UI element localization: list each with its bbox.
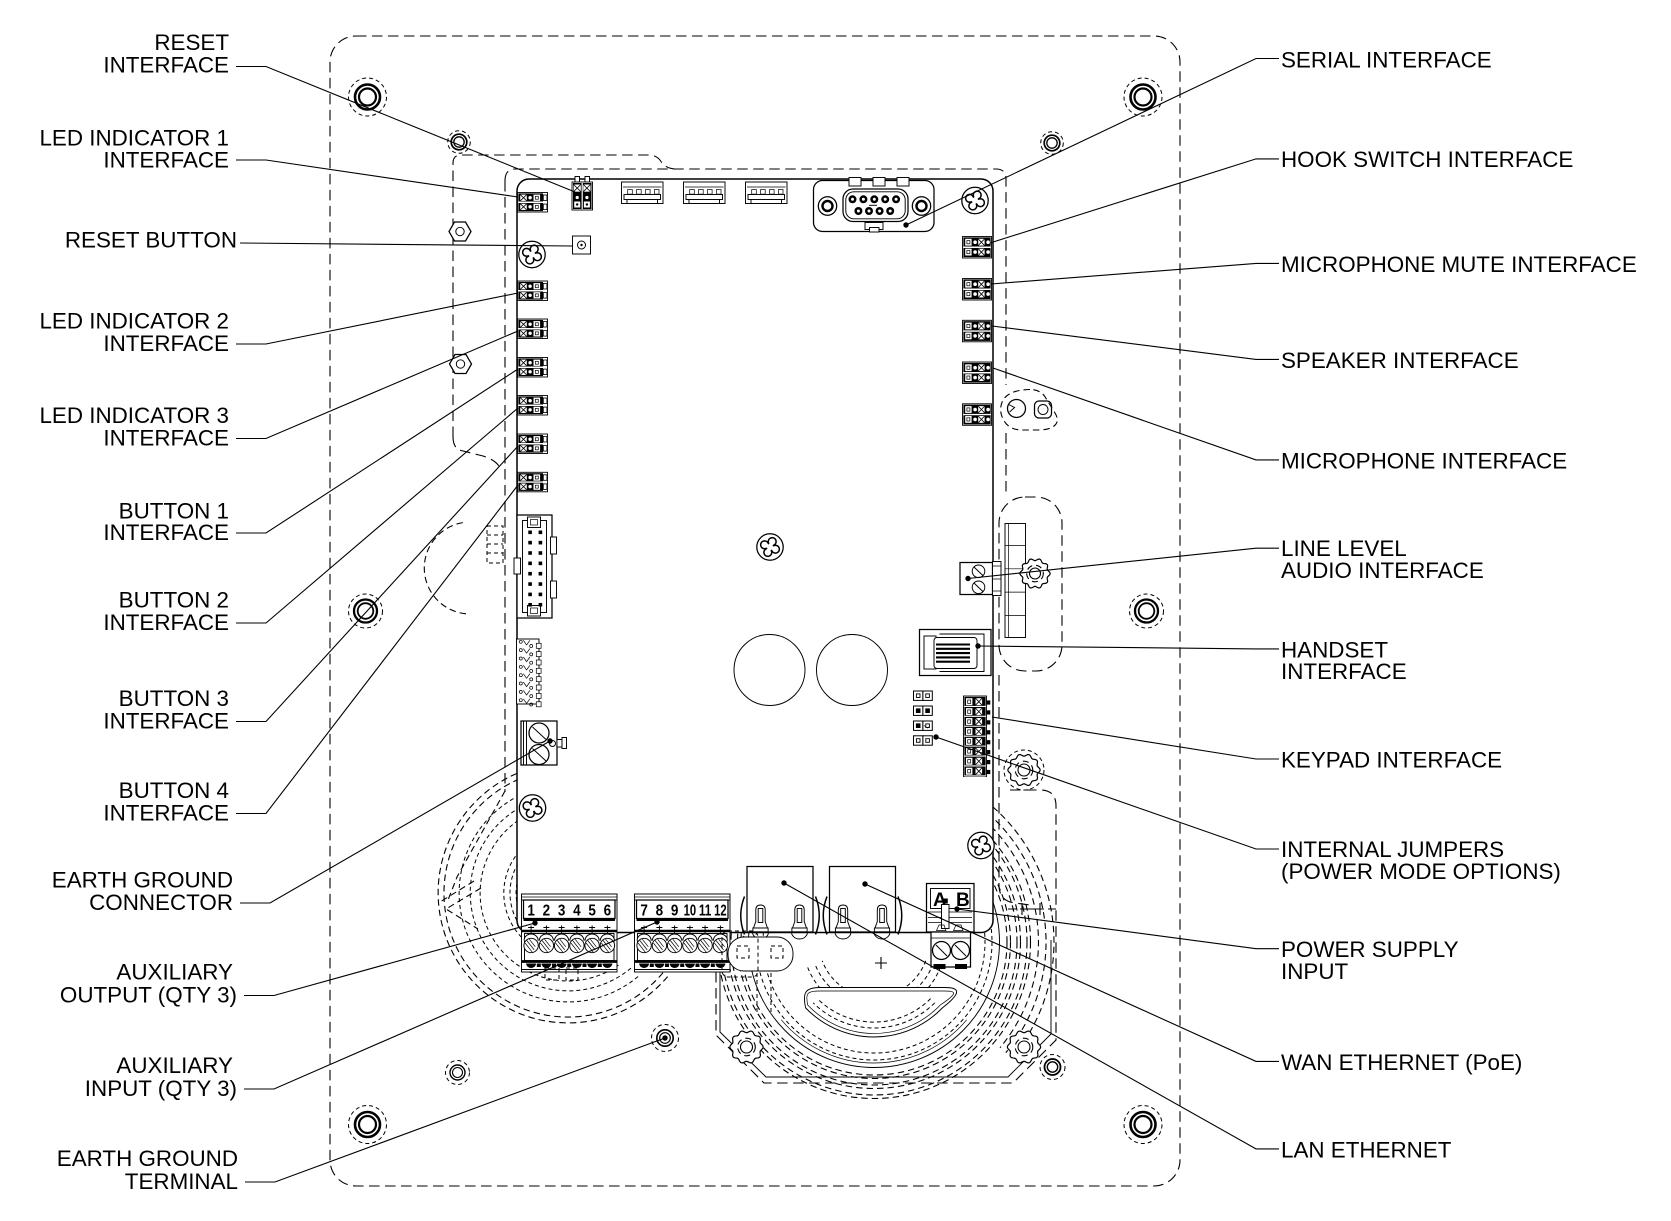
svg-text:INTERFACE: INTERFACE [103,53,229,78]
svg-text:AUXILIARY: AUXILIARY [116,959,233,984]
svg-text:LAN ETHERNET: LAN ETHERNET [1281,1137,1452,1162]
svg-text:3: 3 [558,903,566,920]
svg-text:KEYPAD INTERFACE: KEYPAD INTERFACE [1281,748,1502,773]
svg-text:4: 4 [573,903,581,920]
svg-text:INTERFACE: INTERFACE [103,331,229,356]
svg-text:RESET: RESET [154,30,229,55]
svg-text:BUTTON 3: BUTTON 3 [119,686,229,711]
svg-text:10: 10 [684,903,697,920]
svg-text:EARTH GROUND: EARTH GROUND [57,1146,238,1171]
svg-text:7: 7 [640,903,648,920]
svg-text:LED INDICATOR 2: LED INDICATOR 2 [39,308,229,333]
svg-text:2: 2 [543,903,551,920]
svg-text:INTERFACE: INTERFACE [103,709,229,734]
svg-text:8: 8 [656,903,664,920]
svg-text:5: 5 [588,903,596,920]
svg-text:CONNECTOR: CONNECTOR [89,890,233,915]
svg-text:INTERFACE: INTERFACE [103,610,229,635]
svg-text:HOOK SWITCH INTERFACE: HOOK SWITCH INTERFACE [1281,147,1573,172]
svg-text:AUDIO INTERFACE: AUDIO INTERFACE [1281,558,1484,583]
svg-text:INTERFACE: INTERFACE [103,520,229,545]
svg-text:6: 6 [604,903,612,920]
svg-text:LED INDICATOR 3: LED INDICATOR 3 [39,403,229,428]
svg-text:(POWER MODE OPTIONS): (POWER MODE OPTIONS) [1281,859,1561,884]
svg-text:BUTTON 2: BUTTON 2 [119,588,229,613]
svg-text:INTERFACE: INTERFACE [103,426,229,451]
svg-text:INTERFACE: INTERFACE [103,147,229,172]
svg-text:INTERFACE: INTERFACE [103,801,229,826]
svg-text:SPEAKER INTERFACE: SPEAKER INTERFACE [1281,348,1519,373]
svg-text:BUTTON 4: BUTTON 4 [119,778,229,803]
svg-text:WAN ETHERNET (PoE): WAN ETHERNET (PoE) [1281,1050,1522,1075]
svg-text:OUTPUT (QTY 3): OUTPUT (QTY 3) [60,983,237,1008]
svg-text:INPUT (QTY 3): INPUT (QTY 3) [85,1076,237,1101]
svg-text:MICROPHONE INTERFACE: MICROPHONE INTERFACE [1281,448,1567,473]
svg-text:TERMINAL: TERMINAL [125,1169,238,1194]
svg-text:INTERFACE: INTERFACE [1281,659,1407,684]
svg-text:SERIAL INTERFACE: SERIAL INTERFACE [1281,47,1492,72]
svg-text:RESET BUTTON: RESET BUTTON [65,228,237,253]
svg-text:EARTH GROUND: EARTH GROUND [52,867,233,892]
svg-text:11: 11 [699,903,712,920]
svg-text:MICROPHONE MUTE INTERFACE: MICROPHONE MUTE INTERFACE [1281,252,1637,277]
svg-text:9: 9 [671,903,679,920]
svg-text:12: 12 [714,903,727,920]
svg-text:1: 1 [527,903,535,920]
svg-text:INPUT: INPUT [1281,959,1348,984]
svg-text:AUXILIARY: AUXILIARY [116,1053,233,1078]
